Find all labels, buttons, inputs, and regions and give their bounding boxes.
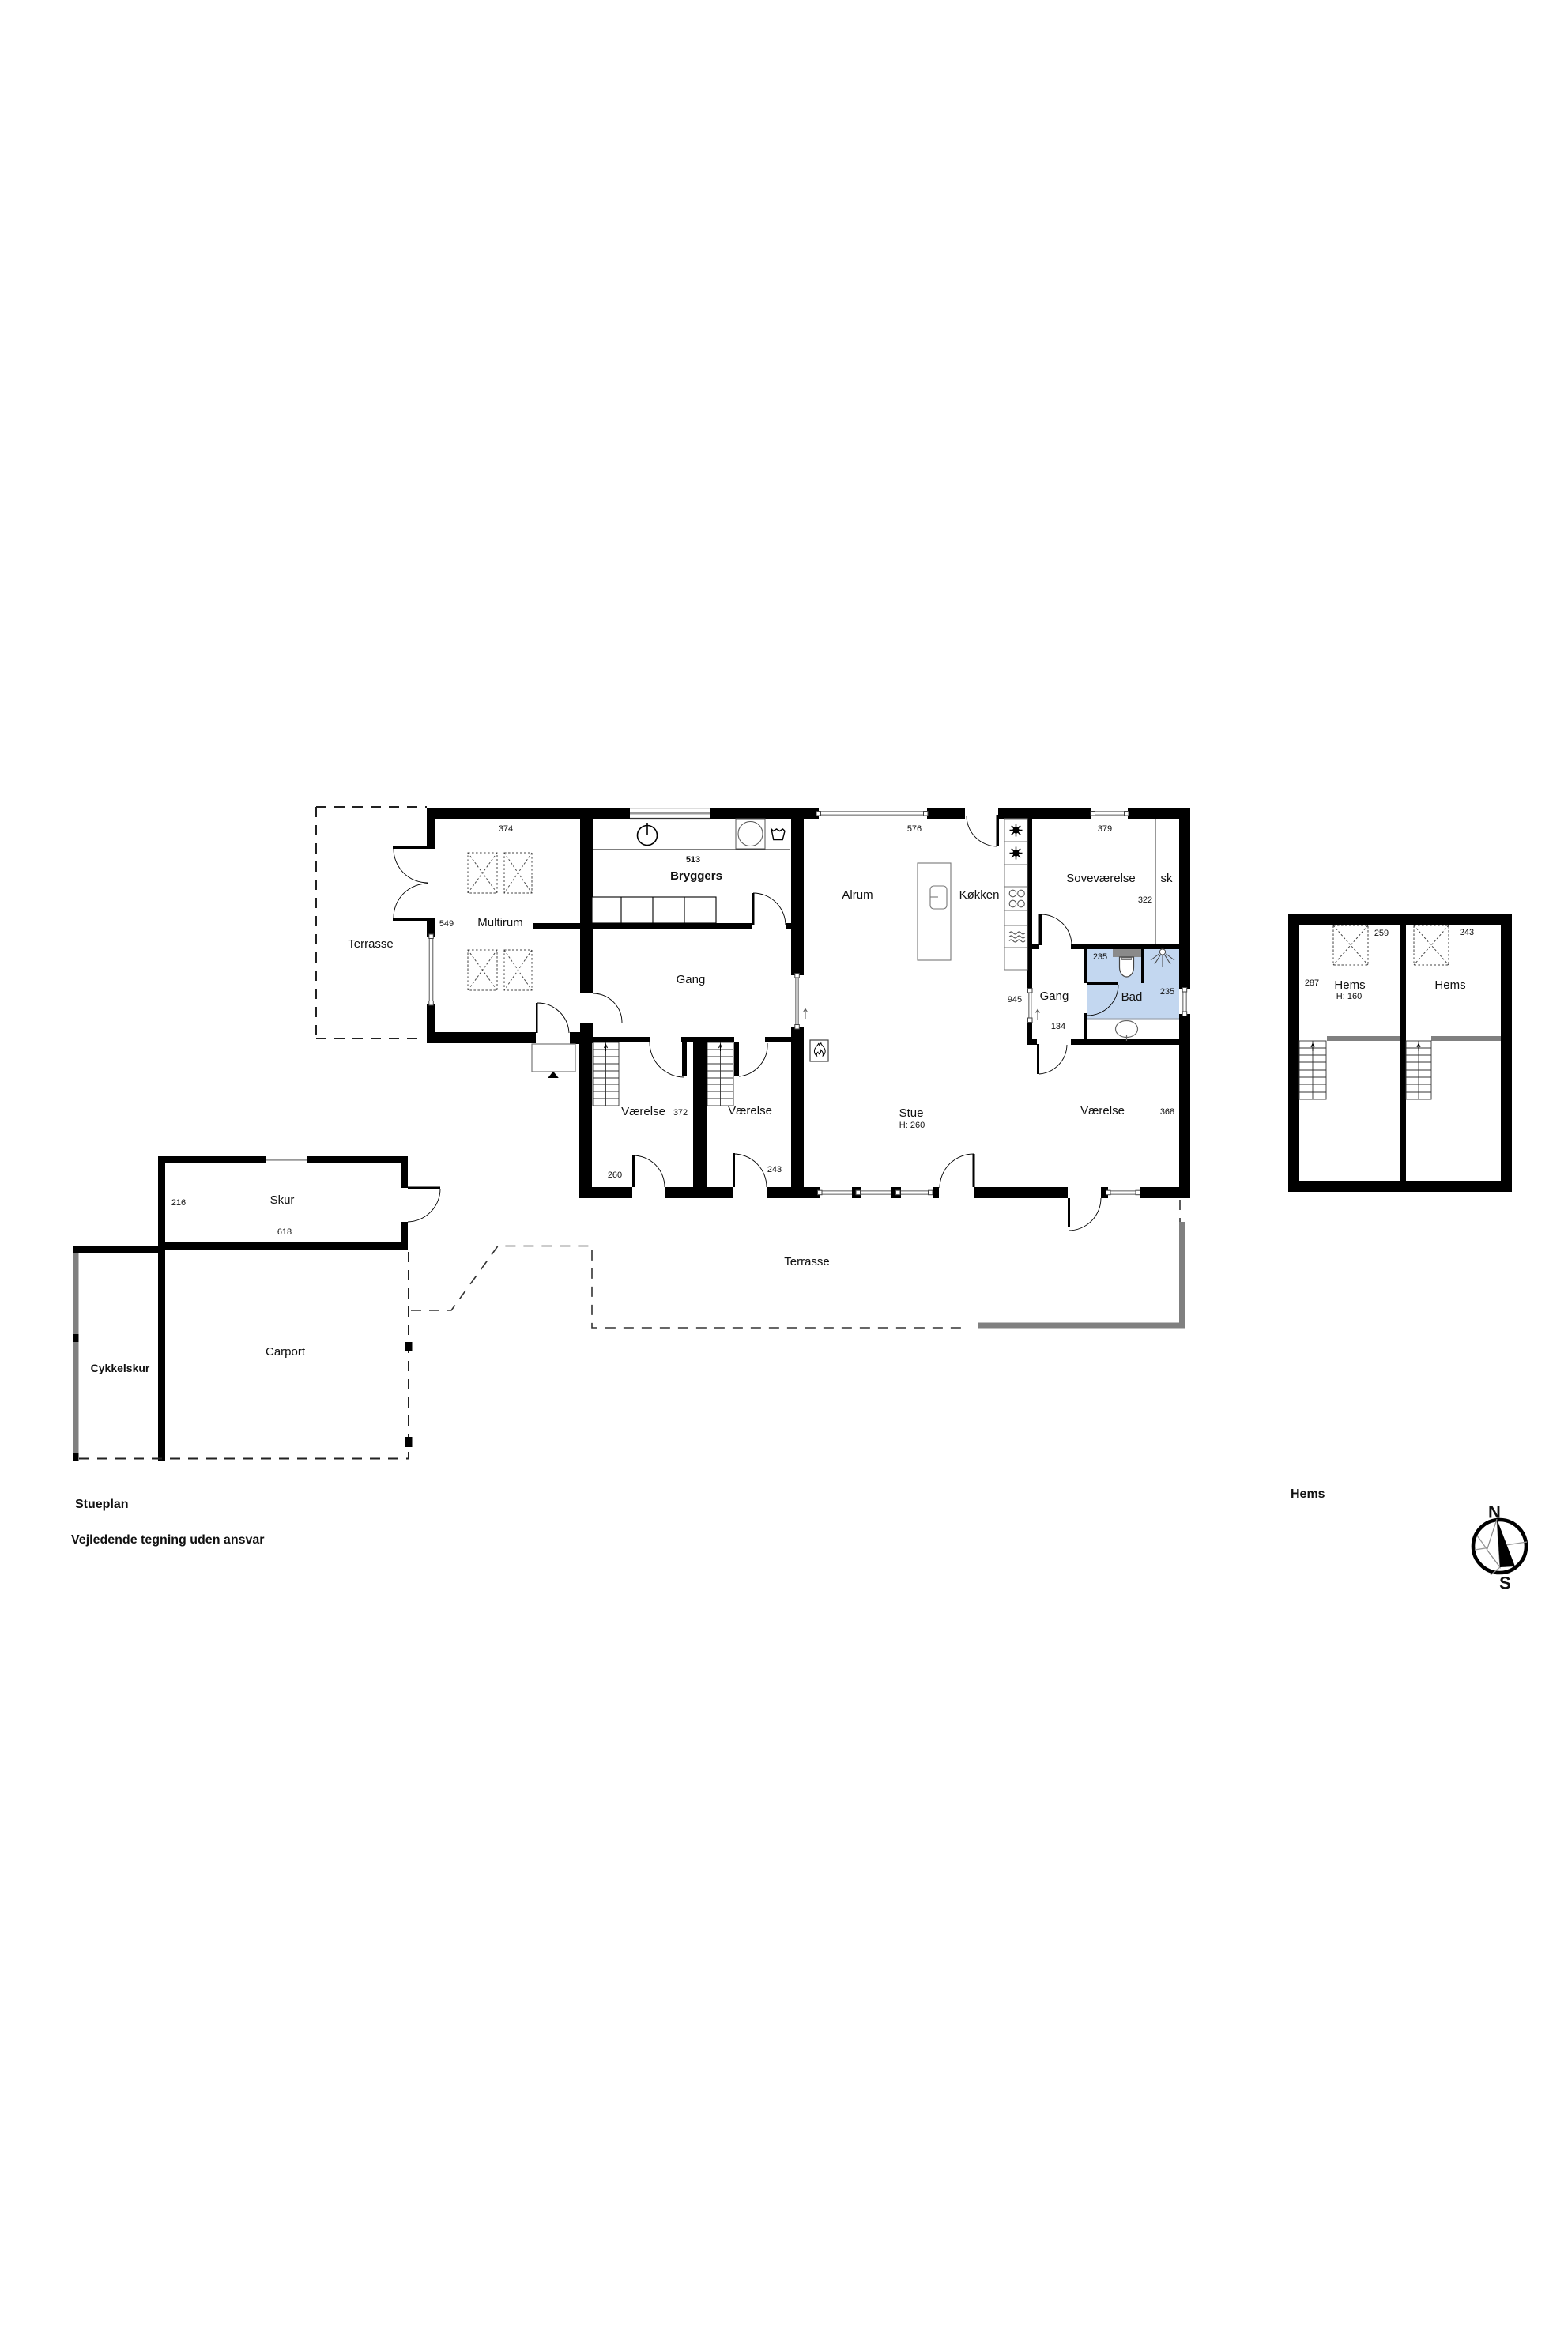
svg-text:Hems: Hems [1334,978,1365,992]
svg-text:H: 160: H: 160 [1336,992,1362,1001]
svg-text:Værelse: Værelse [621,1105,665,1118]
svg-text:Terrasse: Terrasse [348,937,394,951]
svg-text:945: 945 [1008,995,1022,1004]
svg-text:368: 368 [1160,1107,1174,1117]
svg-text:Carport: Carport [266,1345,306,1359]
svg-text:Soveværelse: Soveværelse [1066,872,1136,885]
svg-text:Alrum: Alrum [842,888,873,902]
svg-text:322: 322 [1138,895,1152,905]
svg-text:Terrasse: Terrasse [784,1255,830,1268]
svg-text:374: 374 [499,824,513,834]
svg-text:243: 243 [767,1165,782,1174]
svg-text:235: 235 [1093,952,1107,962]
svg-text:287: 287 [1305,978,1319,988]
svg-text:Hems: Hems [1434,978,1465,992]
svg-text:372: 372 [673,1108,688,1118]
svg-text:Vejledende tegning uden ansvar: Vejledende tegning uden ansvar [71,1533,265,1547]
svg-text:sk: sk [1161,872,1174,885]
svg-text:513: 513 [686,855,700,865]
svg-text:618: 618 [277,1227,292,1237]
svg-text:Cykkelskur: Cykkelskur [91,1362,150,1374]
svg-text:S: S [1499,1574,1511,1593]
svg-text:Gang: Gang [677,973,706,986]
svg-text:Køkken: Køkken [959,888,1000,902]
svg-text:Bryggers: Bryggers [670,869,722,883]
svg-text:Skur: Skur [270,1193,295,1207]
svg-text:Værelse: Værelse [1080,1104,1125,1118]
svg-text:576: 576 [907,824,922,834]
svg-text:216: 216 [171,1198,186,1208]
svg-text:Gang: Gang [1040,989,1069,1003]
svg-text:259: 259 [1374,929,1389,938]
svg-text:Hems: Hems [1291,1487,1325,1501]
svg-text:Bad: Bad [1121,990,1143,1004]
svg-text:235: 235 [1160,987,1174,997]
svg-text:N: N [1488,1502,1501,1522]
svg-text:H: 260: H: 260 [899,1121,925,1130]
svg-text:243: 243 [1460,928,1474,937]
svg-text:Multirum: Multirum [477,916,523,929]
svg-text:Stueplan: Stueplan [75,1498,129,1511]
svg-text:260: 260 [608,1170,622,1180]
svg-text:549: 549 [439,919,454,929]
svg-text:Værelse: Værelse [728,1104,772,1118]
svg-text:Stue: Stue [899,1106,924,1120]
svg-text:134: 134 [1051,1022,1065,1031]
svg-text:379: 379 [1098,824,1112,834]
